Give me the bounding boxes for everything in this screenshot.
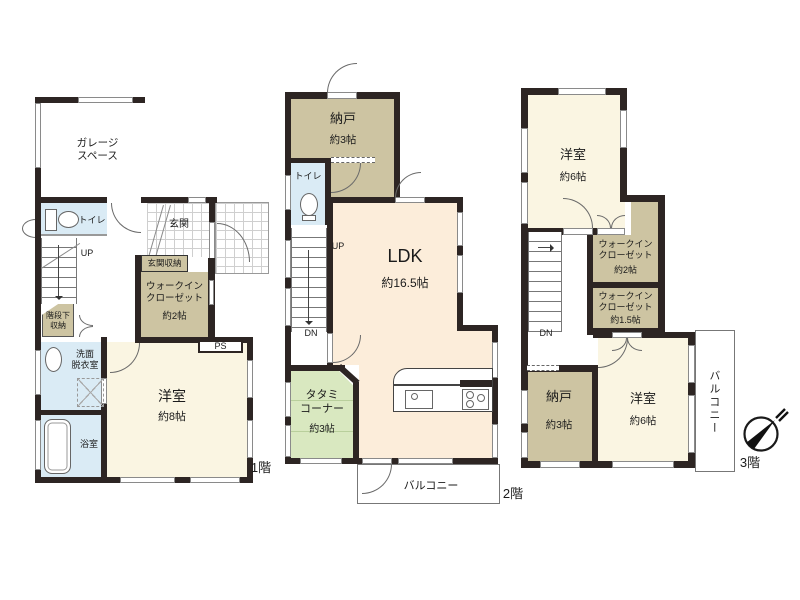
door-opening [563, 228, 593, 235]
window [209, 280, 214, 305]
tatami-size-label: 約3帖 [291, 423, 353, 437]
floor2-label: 2階 [498, 486, 528, 502]
bathtub [44, 419, 71, 474]
toilet-bowl [300, 193, 318, 216]
wall [35, 97, 78, 103]
kitchen-sink [405, 390, 433, 409]
window [540, 461, 580, 468]
closet-front [527, 365, 559, 371]
wall [593, 228, 597, 235]
wic15-size-label: 約1.5帖 [593, 314, 658, 327]
storage-size-label: 約3帖 [308, 133, 378, 148]
wic2-room [631, 200, 658, 237]
wall [35, 197, 107, 203]
window [247, 360, 253, 398]
storage-size-label: 約3帖 [525, 418, 593, 433]
window [620, 110, 627, 148]
wall [133, 97, 145, 103]
toilet-tank [302, 215, 316, 221]
balcony-label: バルコニー [400, 479, 462, 495]
wic-size-label: 約2帖 [141, 310, 208, 324]
door-opening [597, 228, 625, 235]
up-label: UP [76, 248, 98, 260]
ldk-label: LDK [370, 245, 440, 267]
wall [285, 92, 327, 99]
stove-burner [466, 400, 474, 408]
bedroom6-bottom-size-label: 約6帖 [613, 414, 673, 429]
window [35, 350, 41, 395]
wic2-size-label: 約2帖 [593, 264, 658, 277]
toilet-label: トイレ [78, 214, 106, 228]
washing-machine-space [77, 378, 104, 407]
north-compass-icon [738, 400, 790, 456]
window [120, 477, 175, 483]
window [558, 88, 606, 95]
bedroom6-bottom-label: 洋室 [613, 390, 673, 408]
window [247, 420, 253, 458]
window [521, 182, 528, 224]
storage-room [527, 372, 592, 461]
bedroom8-label: 洋室 [137, 388, 207, 406]
window [688, 345, 695, 383]
door-opening [327, 92, 357, 99]
window [300, 458, 342, 464]
window [188, 197, 206, 203]
sink-oval [45, 347, 62, 372]
wall [353, 382, 359, 462]
up-label: UP [327, 241, 349, 253]
dn-label: DN [300, 328, 322, 340]
bedroom6-top-label: 洋室 [543, 146, 603, 164]
wic2-label: ウォークイン クローゼット [593, 238, 658, 262]
bedroom8-size-label: 約8帖 [137, 410, 207, 425]
door-arc [327, 63, 357, 93]
toilet-label: トイレ [294, 170, 322, 183]
stair-arrowhead [550, 244, 558, 252]
understair-label: 階段下 収納 [41, 308, 75, 334]
wic-label: ウォークイン クローゼット [141, 280, 208, 306]
window [78, 97, 133, 103]
window [612, 461, 674, 468]
door-arc [79, 326, 93, 337]
window [521, 432, 528, 458]
balcony-label: バルコニー [703, 355, 723, 450]
entrance-door-opening [209, 222, 215, 262]
divider [41, 234, 107, 236]
window [35, 420, 41, 470]
washroom-label: 洗面 脱衣室 [66, 348, 104, 372]
stair-arrowhead [55, 296, 63, 304]
wall [460, 380, 492, 387]
sink-drain [411, 393, 418, 400]
wall [658, 202, 665, 328]
floorplan-canvas: ガレージ スペース トイレ 玄関 玄関収納 ウォークイン クローゼット 約2帖 … [0, 0, 800, 600]
window [457, 212, 463, 246]
wic15-label: ウォークイン クローゼット [593, 290, 658, 314]
wall [209, 203, 215, 222]
wall [35, 410, 105, 415]
dn-label: DN [535, 328, 557, 340]
floor1-label: 1階 [246, 460, 276, 476]
bath-label: 浴室 [74, 438, 104, 452]
window [35, 103, 41, 168]
window [521, 128, 528, 173]
balcony-door-opening [688, 395, 695, 453]
garage-label: ガレージ スペース [60, 135, 135, 165]
toilet-bowl [58, 211, 79, 228]
storage-label: 納戸 [525, 388, 593, 406]
door-arc [22, 219, 36, 238]
window [492, 424, 498, 458]
wall [327, 197, 395, 203]
window [457, 255, 463, 293]
stair-arrow [58, 245, 59, 297]
door-arc [79, 315, 93, 326]
entrance-label: 玄関 [165, 218, 193, 232]
ldk-size-label: 約16.5帖 [370, 275, 440, 291]
door-arc [111, 203, 141, 233]
bedroom6-top-size-label: 約6帖 [543, 170, 603, 185]
tatami-label: タタミ コーナー [291, 388, 353, 418]
stair-arrow [308, 250, 309, 322]
window [285, 175, 291, 210]
wall [141, 197, 188, 203]
wall [593, 282, 665, 288]
storage-label: 納戸 [308, 110, 378, 128]
floor3-label: 3階 [735, 455, 765, 471]
ps-label: PS [200, 341, 241, 352]
window [190, 477, 240, 483]
wall [394, 92, 400, 197]
stove-burner [477, 394, 485, 402]
stove-burner [466, 391, 474, 399]
wall [606, 88, 627, 95]
wall [627, 195, 665, 202]
toilet-tank [45, 209, 57, 231]
entrance-storage-label: 玄関収納 [143, 257, 186, 270]
